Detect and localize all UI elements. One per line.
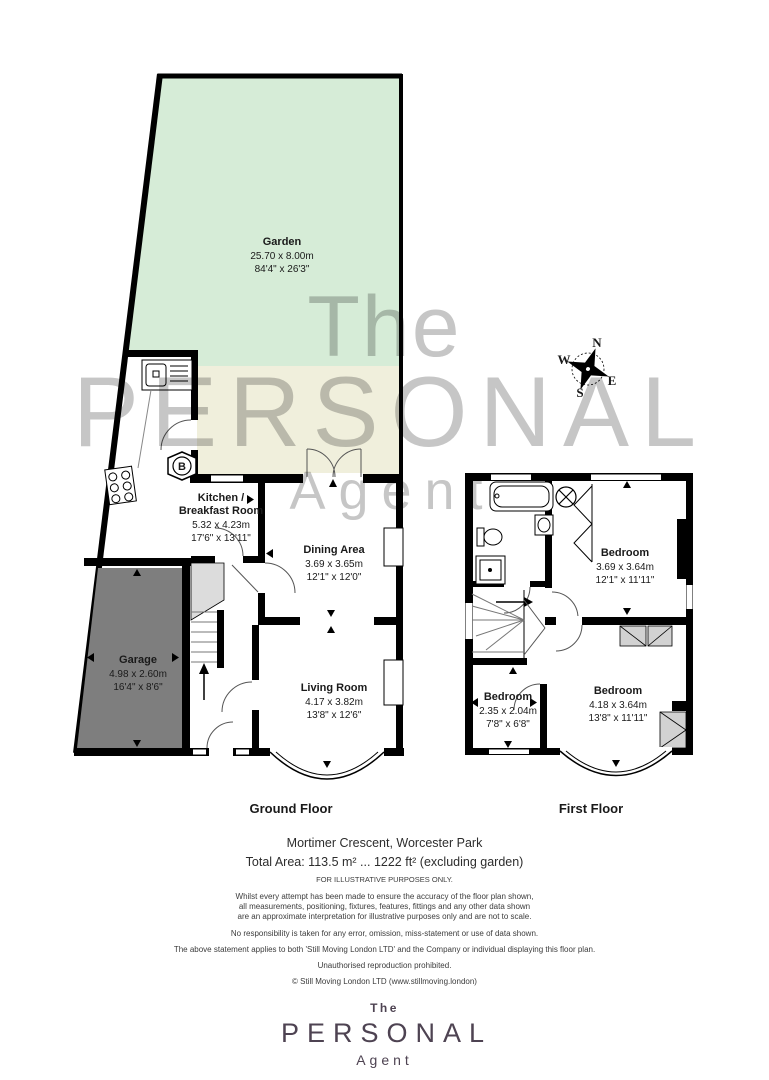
bedroom2-right-wall (540, 684, 547, 755)
agency-logo: The PERSONAL Agent (0, 1002, 769, 1067)
ground-floor-stairs (191, 563, 224, 700)
ff-right-window (687, 585, 693, 609)
porch-window-left (193, 750, 206, 755)
kitchen-name-2: Breakfast Room (179, 505, 264, 517)
bedroom3-metric: 4.18 x 3.64m (589, 700, 647, 711)
dining-imperial: 12'1" x 12'0" (307, 572, 362, 583)
dining-metric: 3.69 x 3.65m (305, 559, 363, 570)
compass-west-label: W (558, 352, 571, 367)
first-floor-plan: Bedroom 3.69 x 3.64m 12'1" x 11'11" Bedr… (465, 473, 693, 816)
dining-door-arc (265, 563, 295, 593)
kitchen-metric: 5.32 x 4.23m (192, 520, 250, 531)
bedroom1-name: Bedroom (601, 547, 650, 559)
disclaimer-line-2: all measurements, positioning, fixtures,… (0, 902, 769, 912)
logo-the: The (0, 1002, 769, 1014)
garden-name: Garden (263, 236, 302, 248)
property-address: Mortimer Crescent, Worcester Park (0, 836, 769, 850)
bedroom3-door-gap (556, 616, 582, 626)
ff-bay-opening (560, 747, 672, 756)
bedroom3-imperial: 13'8" x 11'11" (589, 713, 648, 724)
living-metric: 4.17 x 3.82m (305, 697, 363, 708)
boiler-label: B (178, 461, 186, 473)
disclaimer-line-1: Whilst every attempt has been made to en… (0, 892, 769, 902)
living-name: Living Room (301, 682, 368, 694)
boiler-icon: B (168, 452, 196, 480)
compass-north-label: N (592, 335, 602, 350)
illustrative-note: FOR ILLUSTRATIVE PURPOSES ONLY. (0, 875, 769, 884)
bathroom-window (491, 475, 531, 481)
garden-metric: 25.70 x 8.00m (250, 251, 313, 262)
hall-living-wall-upper (252, 625, 259, 680)
porch-window-right (236, 750, 249, 755)
dining-window (384, 528, 403, 566)
kitchen-hob (105, 466, 137, 504)
dining-door-leaf (232, 565, 258, 592)
dining-living-wall-left (258, 617, 300, 625)
bedroom1-window (591, 475, 661, 481)
garage-right-wall (182, 558, 190, 756)
bedroom1-metric: 3.69 x 3.64m (596, 562, 654, 573)
living-door-arc (222, 682, 252, 712)
kitchen-imperial: 17'6" x 13'11" (191, 533, 251, 544)
compass-rose: N E S W (558, 335, 617, 400)
compass-south-label: S (576, 385, 583, 400)
living-window (384, 660, 403, 705)
logo-personal: PERSONAL (4, 1020, 769, 1047)
extractor-fan-icon (556, 487, 576, 507)
bedroom1-imperial: 12'1" x 11'11" (596, 575, 655, 586)
garage-metric: 4.98 x 2.60m (109, 669, 167, 680)
living-imperial: 13'8" x 12'6" (307, 710, 362, 721)
dining-name: Dining Area (303, 544, 365, 556)
bedroom1-door-gap (545, 592, 552, 618)
kitchen-name-1: Kitchen / (198, 492, 244, 504)
bedroom2-window (489, 750, 529, 755)
front-door-gap (209, 747, 233, 757)
disclaimer-line-3: are an approximate interpretation for il… (0, 912, 769, 922)
logo-agent: Agent (0, 1053, 769, 1067)
kitchen-sink (142, 360, 192, 390)
garden-area (123, 74, 401, 366)
floorplan-page: B (0, 0, 769, 1080)
compass-east-label: E (608, 373, 617, 388)
ground-floor-plan: B (74, 74, 404, 816)
landing-window (466, 603, 473, 639)
first-floor-title: First Floor (559, 801, 623, 816)
bathroom-door-gap (504, 580, 530, 588)
garden-imperial: 84'4" x 26'3" (255, 264, 310, 275)
bedroom3-chimney (672, 701, 693, 711)
garage-name: Garage (119, 654, 157, 666)
bedroom3-name: Bedroom (594, 685, 643, 697)
front-door-arc (207, 722, 233, 748)
kitchen-rear-window (211, 476, 243, 482)
disclaimer-line-4: No responsibility is taken for any error… (0, 929, 769, 938)
toilet (477, 528, 502, 546)
bedroom1-chimney (677, 519, 693, 579)
disclaimer-line-5: The above statement applies to both 'Sti… (0, 945, 769, 954)
footer: Mortimer Crescent, Worcester Park Total … (0, 836, 769, 986)
garage-top-wall (84, 558, 191, 566)
total-area: Total Area: 113.5 m² ... 1222 ft² (exclu… (0, 855, 769, 869)
bedroom2-metric: 2.35 x 2.04m (479, 706, 537, 717)
disclaimer-line-6: Unauthorised reproduction prohibited. (0, 961, 769, 970)
garage-imperial: 16'4" x 8'6" (113, 682, 163, 693)
kitchen-jut-top-wall (123, 350, 197, 357)
bath (490, 482, 553, 511)
bay-opening (270, 747, 384, 757)
patio-area (197, 366, 401, 477)
copyright-line: © Still Moving London LTD (www.stillmovi… (0, 977, 769, 986)
bedroom2-name: Bedroom (484, 691, 533, 703)
bedroom2-top-wall (465, 658, 527, 665)
bedroom2-imperial: 7'8" x 6'8" (486, 719, 530, 730)
shower (476, 556, 505, 584)
ground-right-wall (396, 476, 403, 756)
wash-basin (535, 515, 553, 535)
ff-right-wall (686, 473, 693, 755)
ground-floor-title: Ground Floor (249, 801, 332, 816)
kitchen-dining-wall-upper (258, 483, 265, 563)
